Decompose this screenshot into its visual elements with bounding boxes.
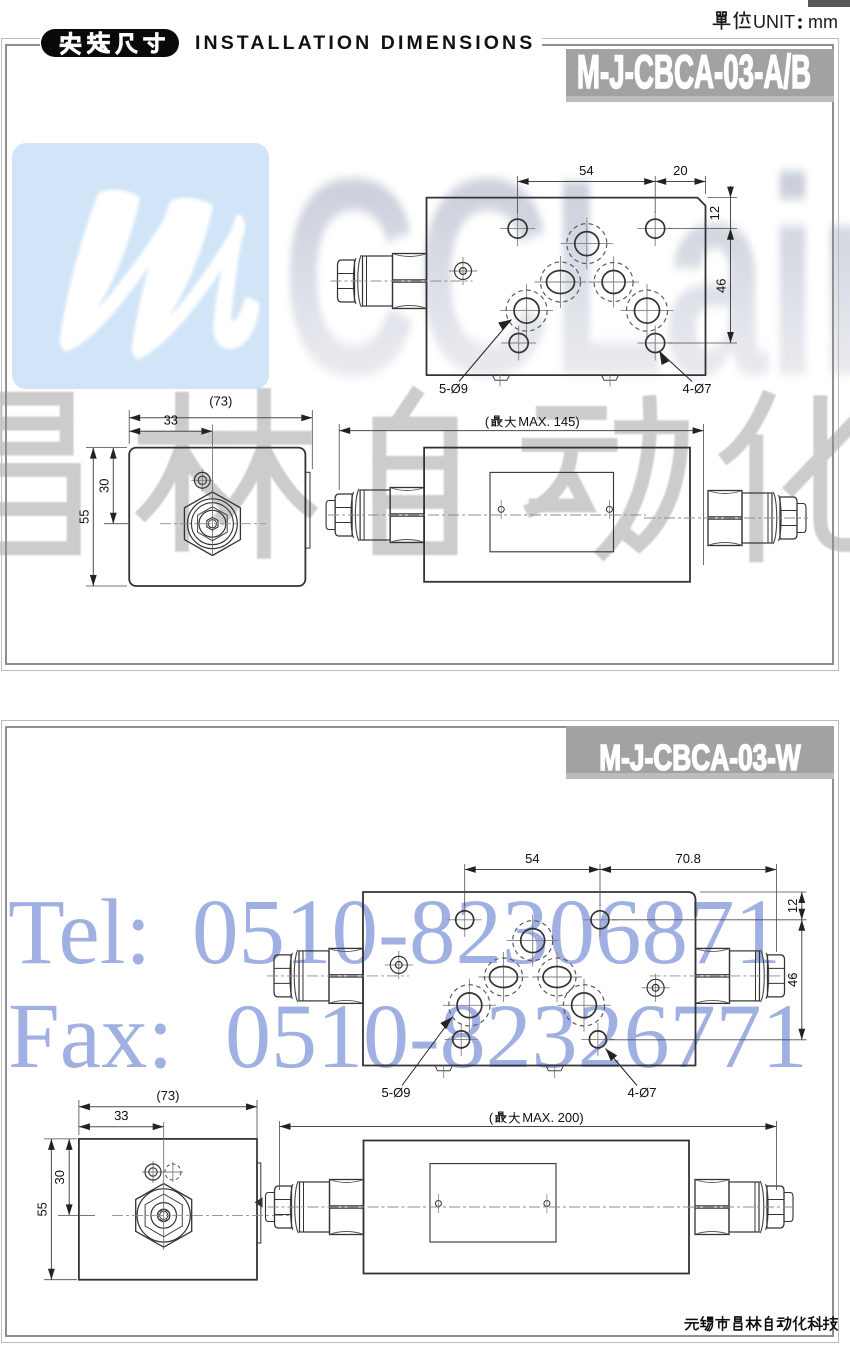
svg-text:20: 20 — [673, 163, 687, 178]
svg-text:30: 30 — [52, 1170, 67, 1184]
svg-text:70.8: 70.8 — [676, 851, 701, 866]
svg-text:mm: mm — [808, 12, 838, 32]
svg-text:(73): (73) — [209, 394, 232, 409]
svg-text:46: 46 — [785, 973, 800, 987]
svg-text:(73): (73) — [156, 1088, 179, 1103]
svg-text:54: 54 — [579, 163, 593, 178]
svg-text:46: 46 — [714, 279, 729, 293]
svg-text:54: 54 — [525, 851, 539, 866]
svg-text:UNIT: UNIT — [753, 12, 795, 32]
svg-text:MAX. 200): MAX. 200) — [522, 1110, 583, 1125]
svg-text:5-Ø9: 5-Ø9 — [439, 381, 468, 396]
svg-text:4-Ø7: 4-Ø7 — [628, 1085, 657, 1100]
svg-text:5-Ø9: 5-Ø9 — [382, 1085, 411, 1100]
svg-text:MAX. 145): MAX. 145) — [518, 414, 579, 429]
svg-text:(: ( — [485, 414, 490, 429]
svg-text:33: 33 — [114, 1108, 128, 1123]
svg-text:33: 33 — [164, 413, 178, 428]
svg-text:55: 55 — [34, 1202, 49, 1216]
svg-text:(: ( — [489, 1110, 494, 1125]
svg-text:12: 12 — [707, 206, 722, 220]
svg-text:55: 55 — [76, 510, 91, 524]
svg-text:12: 12 — [785, 899, 800, 913]
svg-text:4-Ø7: 4-Ø7 — [683, 381, 712, 396]
svg-text:30: 30 — [96, 478, 111, 492]
